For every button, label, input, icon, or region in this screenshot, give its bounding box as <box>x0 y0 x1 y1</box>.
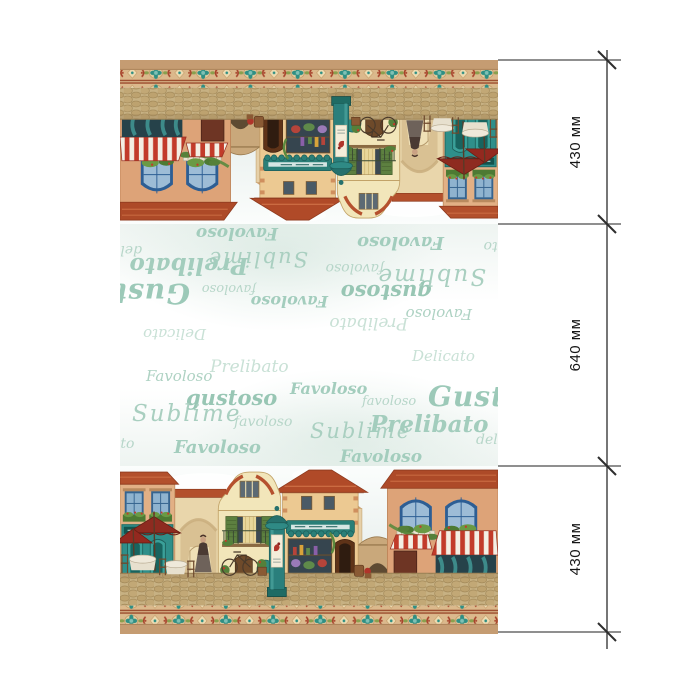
fabric-panel: Favoloso Prelibato gustoso Favoloso favo… <box>120 60 498 634</box>
dimension-tick <box>598 215 616 233</box>
dimension-label: 640 мм <box>567 319 584 372</box>
dimension-label: 430 мм <box>567 116 584 169</box>
script-word: Prelibato <box>130 254 248 277</box>
script-word: Favoloso <box>146 369 212 384</box>
script-word: favoloso <box>202 282 256 295</box>
product-image: Favoloso Prelibato gustoso Favoloso favo… <box>0 0 700 700</box>
script-word: Sublime <box>377 264 486 287</box>
script-word: favoloso <box>362 395 416 408</box>
script-word: Favoloso <box>340 449 422 466</box>
script-words-inverted: Favoloso Prelibato gustoso Favoloso favo… <box>120 224 498 345</box>
script-word: Favoloso <box>290 381 367 397</box>
script-word: favoloso <box>326 261 384 275</box>
script-word: Prelibato <box>329 314 408 331</box>
script-word: Favoloso <box>251 293 328 309</box>
dimension-label: 430 мм <box>567 523 584 576</box>
fabric-bottom-border-section <box>120 466 498 634</box>
script-word: Gustoso <box>120 279 190 307</box>
script-word: Favoloso <box>357 233 444 251</box>
script-word: favoloso <box>234 415 292 429</box>
script-word: Favoloso <box>174 439 261 457</box>
script-word: Sublime <box>132 403 241 426</box>
script-word: ato <box>484 239 498 253</box>
script-word: Delicato <box>412 349 475 364</box>
script-words: Favoloso Prelibato gustoso Favoloso favo… <box>120 345 498 466</box>
fabric-top-border-section <box>120 60 498 224</box>
dimension-tick <box>598 457 616 475</box>
dimension-tick <box>598 623 616 641</box>
script-word: Delicato <box>143 326 206 341</box>
script-word: Prelibato <box>370 413 488 436</box>
script-word: Favoloso <box>196 224 278 241</box>
dimension-tick <box>598 51 616 69</box>
fabric-middle-section: Favoloso Prelibato gustoso Favoloso favo… <box>120 224 498 466</box>
street-scene-illustration <box>120 466 498 634</box>
script-word: Gustoso <box>428 383 498 411</box>
script-word: delic <box>476 433 498 447</box>
script-word: Prelibato <box>210 359 289 376</box>
street-scene-illustration-inverted <box>120 60 498 224</box>
script-word: Favoloso <box>406 306 472 321</box>
script-word: ato <box>120 437 134 451</box>
script-word: delic <box>120 243 142 257</box>
